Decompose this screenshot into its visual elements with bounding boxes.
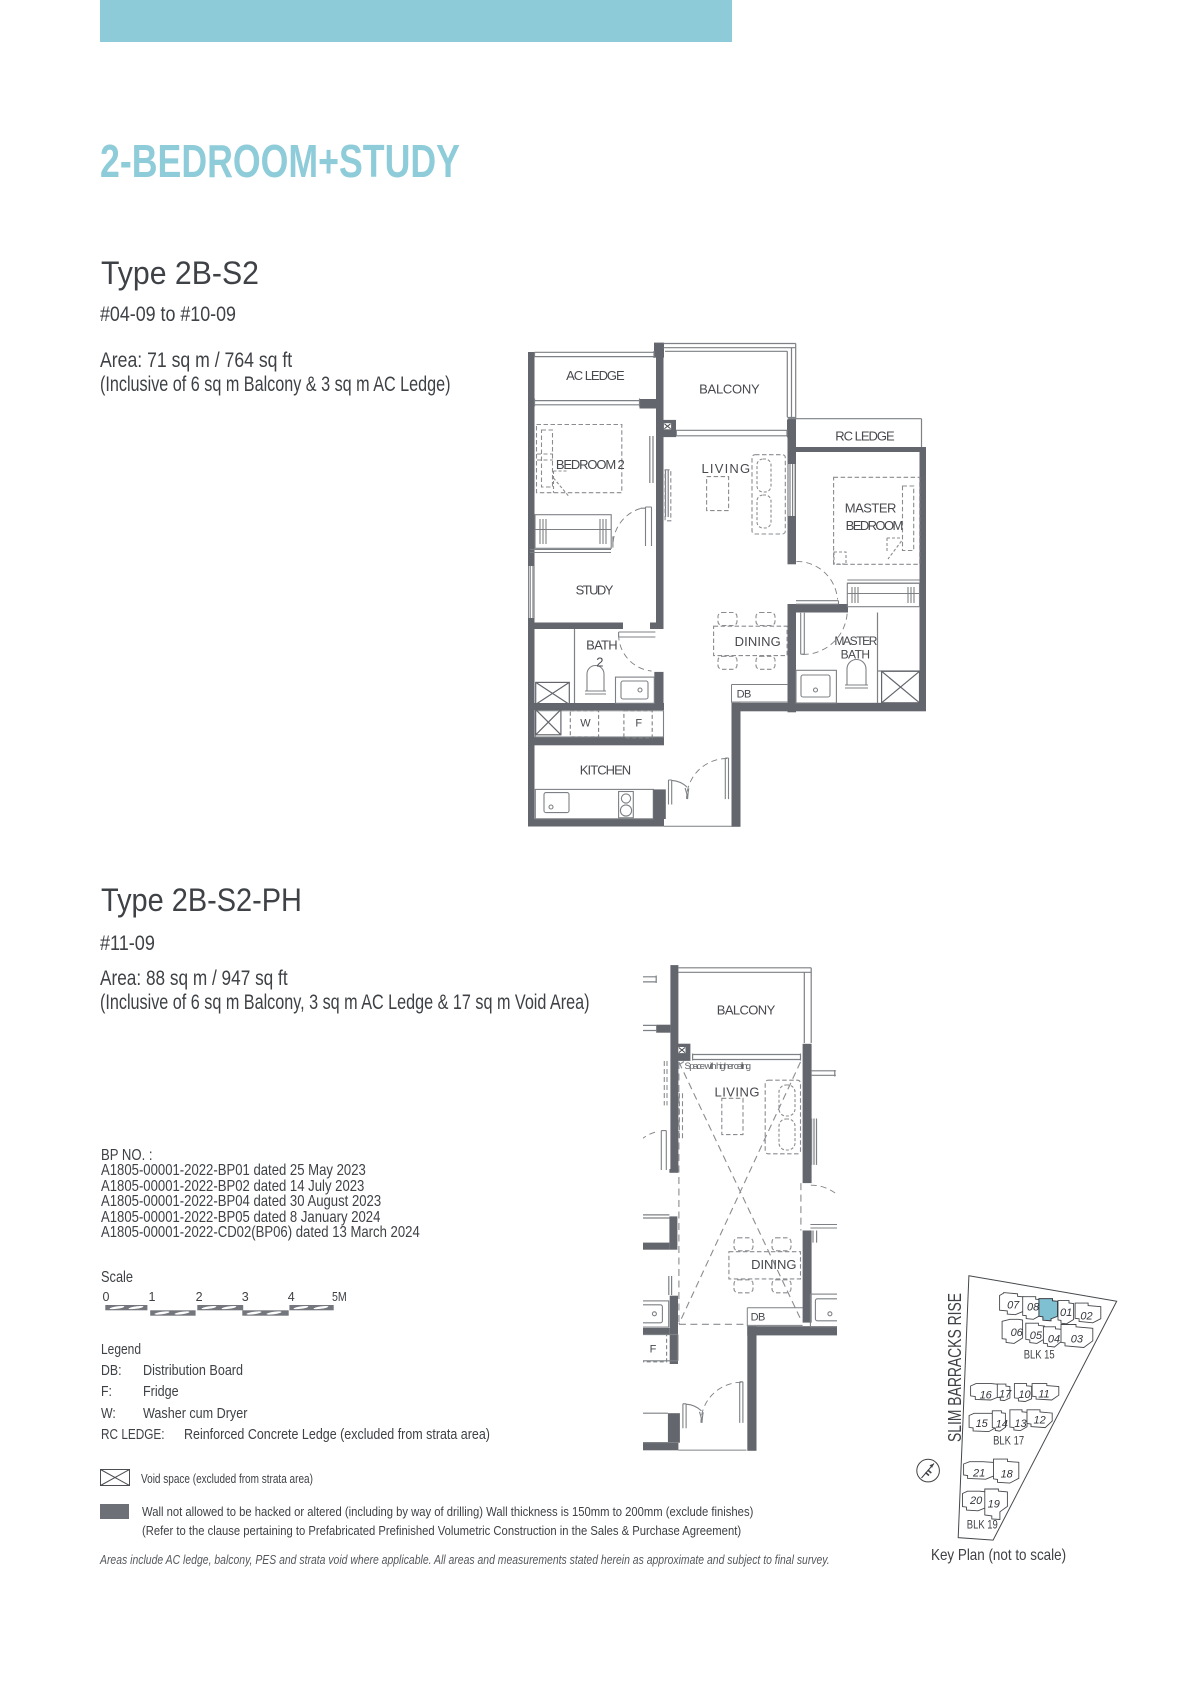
svg-text:01: 01 (1060, 1307, 1072, 1319)
svg-text:DINING: DINING (735, 634, 781, 649)
svg-text:04: 04 (1048, 1333, 1060, 1345)
svg-text:2: 2 (596, 655, 603, 670)
svg-text:W: W (580, 717, 591, 729)
svg-text:STUDY: STUDY (576, 583, 614, 598)
svg-text:BEDROOM 2: BEDROOM 2 (556, 457, 625, 472)
svg-text:08: 08 (1027, 1302, 1040, 1314)
svg-text:Space with higher ceiling: Space with higher ceiling (685, 1061, 752, 1072)
svg-text:BALCONY: BALCONY (717, 1003, 776, 1018)
svg-text:21: 21 (972, 1467, 985, 1479)
svg-text:KITCHEN: KITCHEN (580, 763, 631, 778)
svg-text:15: 15 (976, 1418, 989, 1430)
svg-text:16: 16 (980, 1390, 993, 1402)
svg-text:14: 14 (996, 1418, 1008, 1430)
svg-text:DINING: DINING (751, 1257, 796, 1272)
svg-text:05: 05 (1030, 1330, 1043, 1342)
svg-text:AC LEDGE: AC LEDGE (566, 368, 625, 383)
svg-text:DB: DB (751, 1312, 766, 1324)
svg-text:F: F (635, 717, 642, 729)
svg-text:10: 10 (1018, 1389, 1031, 1401)
svg-text:13: 13 (1014, 1418, 1027, 1430)
svg-text:MASTER: MASTER (845, 501, 897, 516)
svg-text:20: 20 (969, 1495, 983, 1507)
svg-text:MASTER: MASTER (834, 634, 877, 648)
svg-text:18: 18 (1001, 1469, 1014, 1481)
svg-text:F: F (650, 1343, 657, 1355)
svg-text:SLIM BARRACKS RISE: SLIM BARRACKS RISE (945, 1293, 965, 1442)
svg-text:BEDROOM: BEDROOM (846, 518, 904, 533)
svg-text:17: 17 (999, 1389, 1012, 1401)
svg-text:LIVING: LIVING (715, 1084, 760, 1099)
svg-text:BALCONY: BALCONY (699, 382, 760, 397)
svg-text:BLK 17: BLK 17 (993, 1434, 1024, 1448)
svg-text:06: 06 (1011, 1327, 1024, 1339)
svg-text:07: 07 (1007, 1299, 1020, 1311)
svg-text:BLK 19: BLK 19 (967, 1518, 998, 1532)
svg-text:BLK 15: BLK 15 (1024, 1348, 1055, 1362)
svg-text:12: 12 (1033, 1415, 1045, 1427)
svg-text:11: 11 (1038, 1389, 1049, 1401)
svg-text:BATH: BATH (841, 648, 870, 662)
svg-text:19: 19 (988, 1499, 1000, 1511)
svg-text:BATH: BATH (586, 638, 618, 653)
svg-text:02: 02 (1080, 1310, 1092, 1322)
svg-text:DB: DB (737, 689, 752, 701)
svg-text:LIVING: LIVING (701, 461, 750, 476)
svg-text:03: 03 (1071, 1334, 1084, 1346)
svg-text:RC LEDGE: RC LEDGE (835, 428, 895, 443)
